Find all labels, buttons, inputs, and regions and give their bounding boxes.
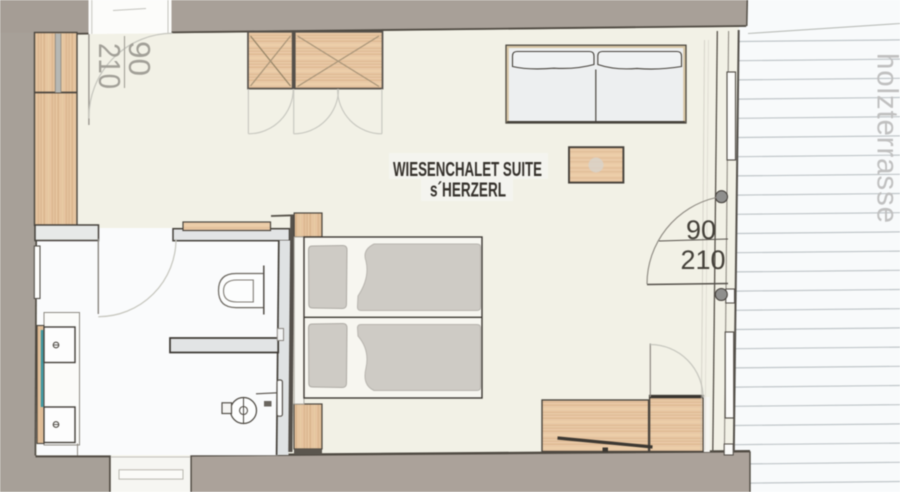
- svg-text:s´HERZERL: s´HERZERL: [430, 179, 506, 202]
- svg-text:210: 210: [680, 245, 725, 275]
- svg-text:210: 210: [92, 43, 127, 89]
- svg-text:holzterrasse: holzterrasse: [871, 53, 900, 223]
